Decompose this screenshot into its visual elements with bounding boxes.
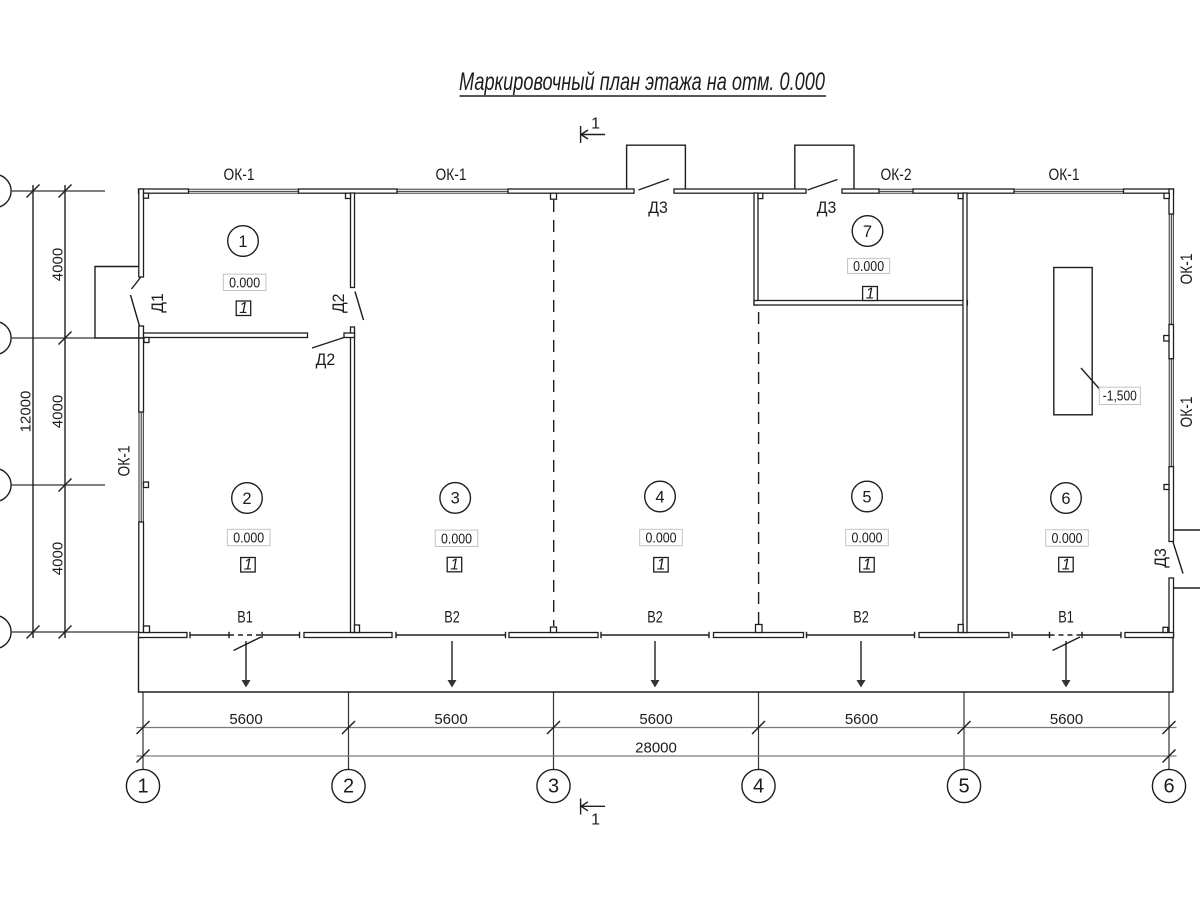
svg-text:Д1: Д1 (149, 293, 167, 313)
svg-text:В2: В2 (647, 609, 663, 627)
svg-text:1: 1 (239, 300, 248, 317)
svg-text:4: 4 (753, 776, 764, 798)
svg-text:12000: 12000 (18, 391, 35, 433)
svg-text:1: 1 (657, 557, 666, 574)
svg-text:1: 1 (591, 116, 600, 133)
svg-text:В1: В1 (237, 609, 253, 627)
svg-text:ОК-1: ОК-1 (1178, 254, 1196, 285)
svg-text:В2: В2 (853, 609, 869, 627)
svg-text:6: 6 (1163, 776, 1174, 798)
svg-text:0.000: 0.000 (852, 531, 883, 547)
svg-text:3: 3 (451, 490, 460, 508)
svg-text:1: 1 (866, 285, 875, 302)
svg-text:1: 1 (591, 812, 600, 829)
svg-text:1: 1 (863, 557, 872, 574)
svg-text:1: 1 (450, 557, 459, 574)
svg-text:0.000: 0.000 (646, 531, 677, 547)
svg-text:2: 2 (343, 776, 354, 798)
svg-text:4: 4 (655, 488, 664, 506)
svg-text:ОК-1: ОК-1 (116, 446, 134, 477)
svg-text:ОК-1: ОК-1 (1178, 397, 1196, 428)
svg-text:4000: 4000 (50, 395, 67, 428)
svg-text:5: 5 (958, 776, 969, 798)
svg-text:В1: В1 (1058, 609, 1074, 627)
svg-text:28000: 28000 (635, 740, 677, 757)
svg-text:Д2: Д2 (330, 294, 348, 314)
svg-text:Маркировочный план этажа на от: Маркировочный план этажа на отм. 0.000 (459, 68, 825, 96)
svg-text:ОК-1: ОК-1 (436, 166, 467, 184)
svg-text:1: 1 (137, 776, 148, 798)
svg-text:1: 1 (1062, 557, 1071, 574)
svg-text:2: 2 (242, 490, 251, 508)
svg-text:5600: 5600 (639, 711, 672, 728)
svg-text:Д2: Д2 (316, 351, 336, 369)
svg-text:5: 5 (862, 488, 871, 506)
svg-text:5600: 5600 (1050, 711, 1083, 728)
svg-text:0.000: 0.000 (853, 259, 884, 275)
svg-text:0.000: 0.000 (441, 531, 472, 547)
svg-text:Д3: Д3 (648, 199, 668, 217)
svg-text:0.000: 0.000 (233, 531, 264, 547)
svg-text:5600: 5600 (845, 711, 878, 728)
svg-text:Д3: Д3 (817, 199, 837, 217)
svg-text:0.000: 0.000 (229, 275, 260, 291)
svg-text:4000: 4000 (50, 542, 67, 575)
svg-text:5600: 5600 (229, 711, 262, 728)
svg-text:ОК-1: ОК-1 (1049, 166, 1080, 184)
svg-text:1: 1 (238, 233, 247, 251)
svg-text:6: 6 (1061, 490, 1070, 508)
svg-text:0.000: 0.000 (1052, 531, 1083, 547)
svg-text:5600: 5600 (434, 711, 467, 728)
svg-text:ОК-1: ОК-1 (224, 166, 255, 184)
svg-text:В2: В2 (444, 609, 460, 627)
svg-text:3: 3 (548, 776, 559, 798)
svg-text:ОК-2: ОК-2 (881, 166, 912, 184)
svg-text:7: 7 (863, 223, 872, 241)
svg-text:1: 1 (244, 557, 253, 574)
svg-text:4000: 4000 (50, 248, 67, 281)
svg-text:Д3: Д3 (1152, 548, 1170, 568)
svg-text:-1,500: -1,500 (1103, 389, 1137, 405)
